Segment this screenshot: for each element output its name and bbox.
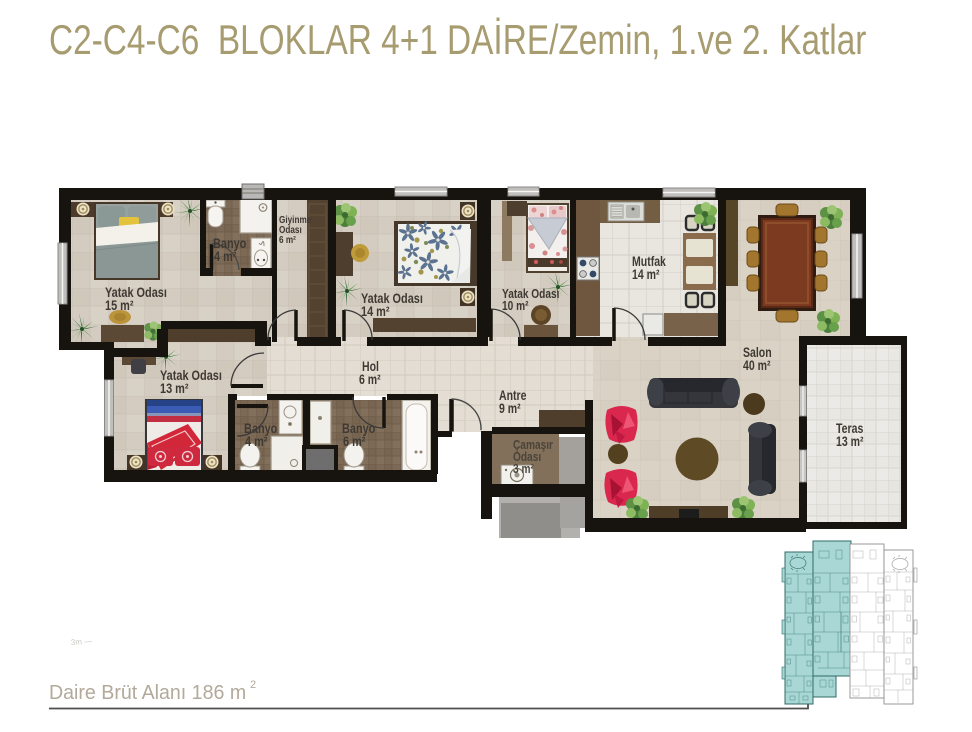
svg-text:13 m²: 13 m² <box>836 434 863 450</box>
svg-text:C2-C4-C6 BLOKLAR 4+1 DAİRE/Ze: C2-C4-C6 BLOKLAR 4+1 DAİRE/Zemin, 1.ve 2… <box>49 16 866 64</box>
svg-text:14 m²: 14 m² <box>361 304 390 320</box>
svg-text:3m —: 3m — <box>71 637 93 647</box>
svg-text:6 m²: 6 m² <box>359 372 381 388</box>
svg-text:13 m²: 13 m² <box>160 381 189 397</box>
svg-text:Daire Brüt Alanı 186 m: Daire Brüt Alanı 186 m <box>49 682 246 704</box>
svg-text:4 m²: 4 m² <box>214 249 236 265</box>
svg-text:3 m²: 3 m² <box>513 462 534 476</box>
svg-text:14 m²: 14 m² <box>632 267 659 283</box>
svg-text:15 m²: 15 m² <box>105 298 134 314</box>
svg-text:6 m²: 6 m² <box>279 233 296 245</box>
svg-text:6 m²: 6 m² <box>343 434 365 450</box>
svg-text:2: 2 <box>250 679 256 691</box>
svg-text:4 m²: 4 m² <box>245 434 267 450</box>
svg-text:10 m²: 10 m² <box>502 299 529 313</box>
svg-text:9 m²: 9 m² <box>499 401 521 417</box>
svg-text:40 m²: 40 m² <box>743 358 770 374</box>
